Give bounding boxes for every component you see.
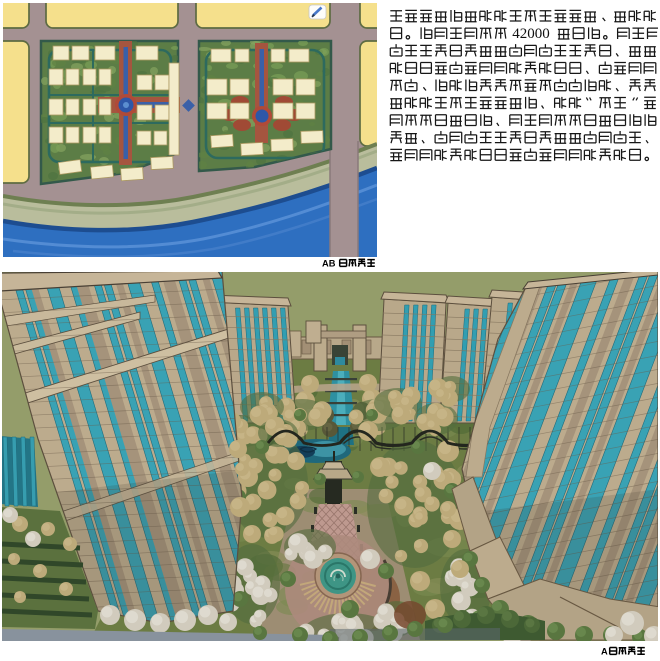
svg-text:AB: AB bbox=[322, 259, 336, 269]
svg-text:42000: 42000 bbox=[512, 26, 550, 42]
svg-text:A: A bbox=[601, 647, 608, 657]
